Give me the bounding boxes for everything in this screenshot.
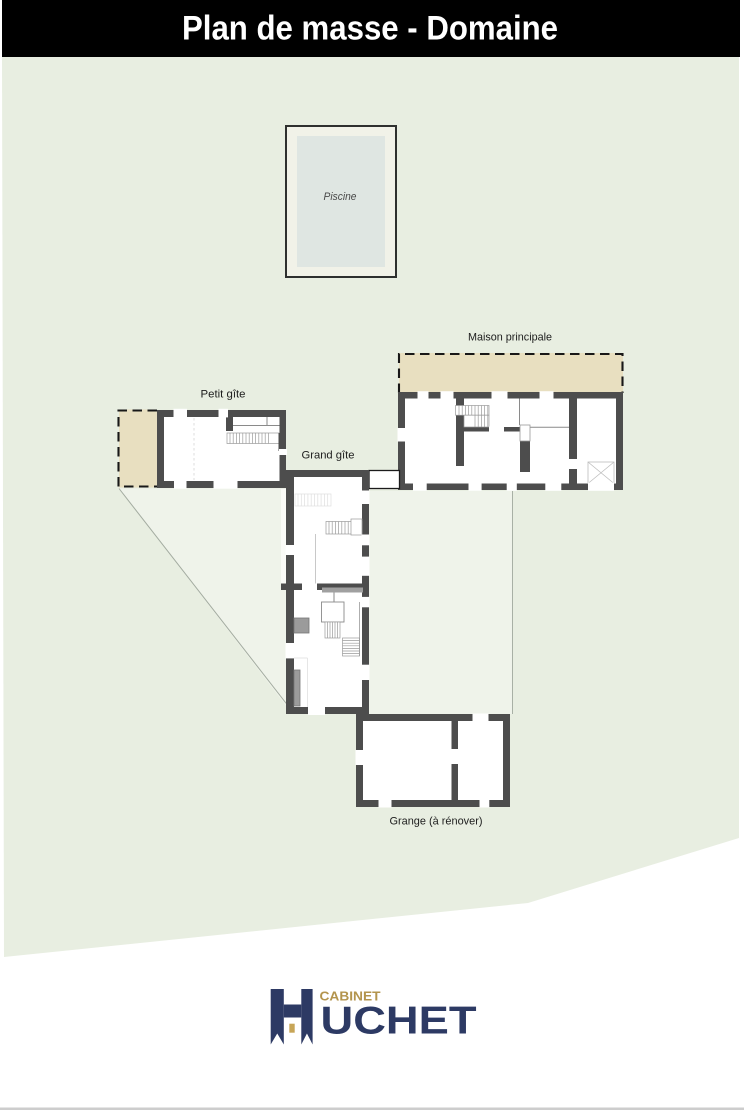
svg-text:Maison principale: Maison principale [468,332,552,344]
svg-text:Petit gîte: Petit gîte [201,389,246,401]
svg-text:Grand gîte: Grand gîte [302,450,355,462]
svg-text:Grange (à rénover): Grange (à rénover) [390,816,483,828]
svg-text:Piscine: Piscine [324,191,357,203]
svg-text:UCHET: UCHET [321,1000,477,1043]
svg-text:Plan de masse - Domaine: Plan de masse - Domaine [182,10,558,48]
